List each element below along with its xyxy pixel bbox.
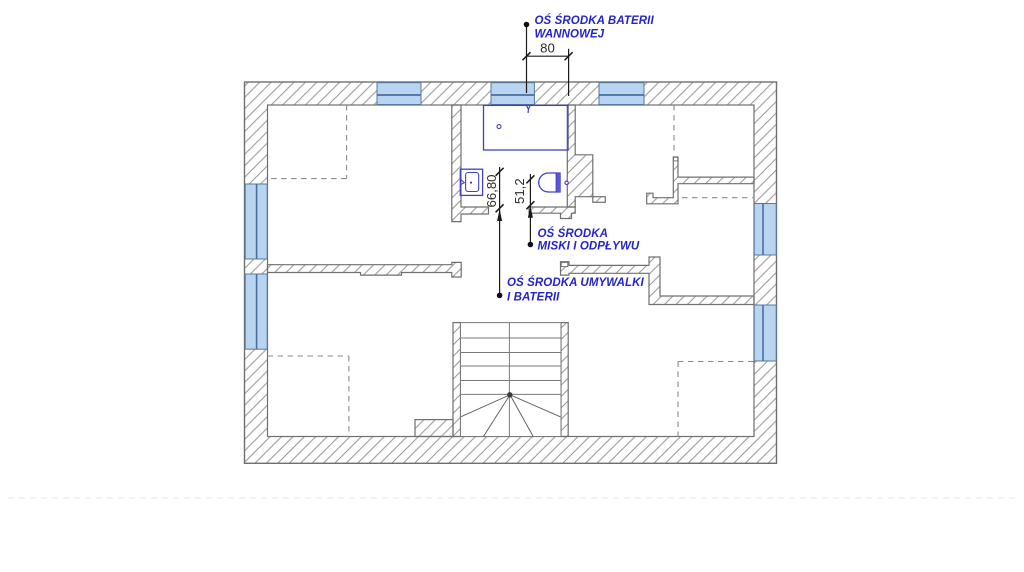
svg-text:66,80: 66,80 [484,174,499,207]
svg-text:MISKI I ODPŁYWU: MISKI I ODPŁYWU [538,240,640,252]
svg-text:OŚ ŚRODKA: OŚ ŚRODKA [538,227,609,240]
svg-text:WANNOWEJ: WANNOWEJ [535,29,605,41]
svg-text:51,2: 51,2 [512,178,527,204]
svg-text:I BATERII: I BATERII [507,291,560,303]
svg-text:OŚ ŚRODKA BATERII: OŚ ŚRODKA BATERII [535,14,655,27]
svg-text:80: 80 [540,41,555,56]
svg-text:OŚ ŚRODKA UMYWALKI: OŚ ŚRODKA UMYWALKI [507,276,645,289]
